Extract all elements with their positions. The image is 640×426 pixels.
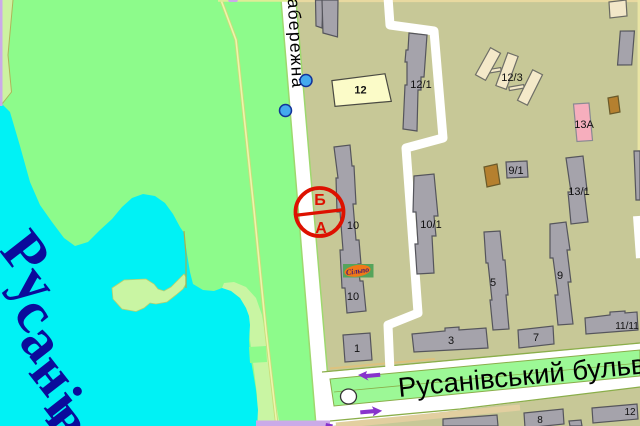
svg-text:12: 12 — [354, 85, 366, 97]
svg-text:12/3: 12/3 — [501, 72, 522, 84]
svg-text:10: 10 — [347, 291, 359, 303]
svg-text:10: 10 — [347, 220, 359, 232]
svg-text:8: 8 — [537, 415, 543, 426]
svg-text:5: 5 — [490, 277, 496, 289]
svg-text:12/1: 12/1 — [410, 79, 431, 91]
svg-text:13А: 13А — [574, 119, 594, 131]
svg-text:11/11: 11/11 — [615, 321, 639, 332]
svg-text:1: 1 — [354, 343, 360, 355]
svg-text:7: 7 — [533, 332, 539, 344]
svg-text:Б: Б — [314, 192, 326, 209]
svg-text:9: 9 — [557, 270, 563, 282]
svg-text:9/1: 9/1 — [508, 165, 523, 177]
svg-text:А: А — [315, 220, 327, 237]
svg-text:10/1: 10/1 — [420, 219, 441, 231]
svg-text:12: 12 — [624, 407, 636, 418]
svg-text:13/1: 13/1 — [568, 186, 589, 198]
svg-text:3: 3 — [448, 335, 454, 347]
